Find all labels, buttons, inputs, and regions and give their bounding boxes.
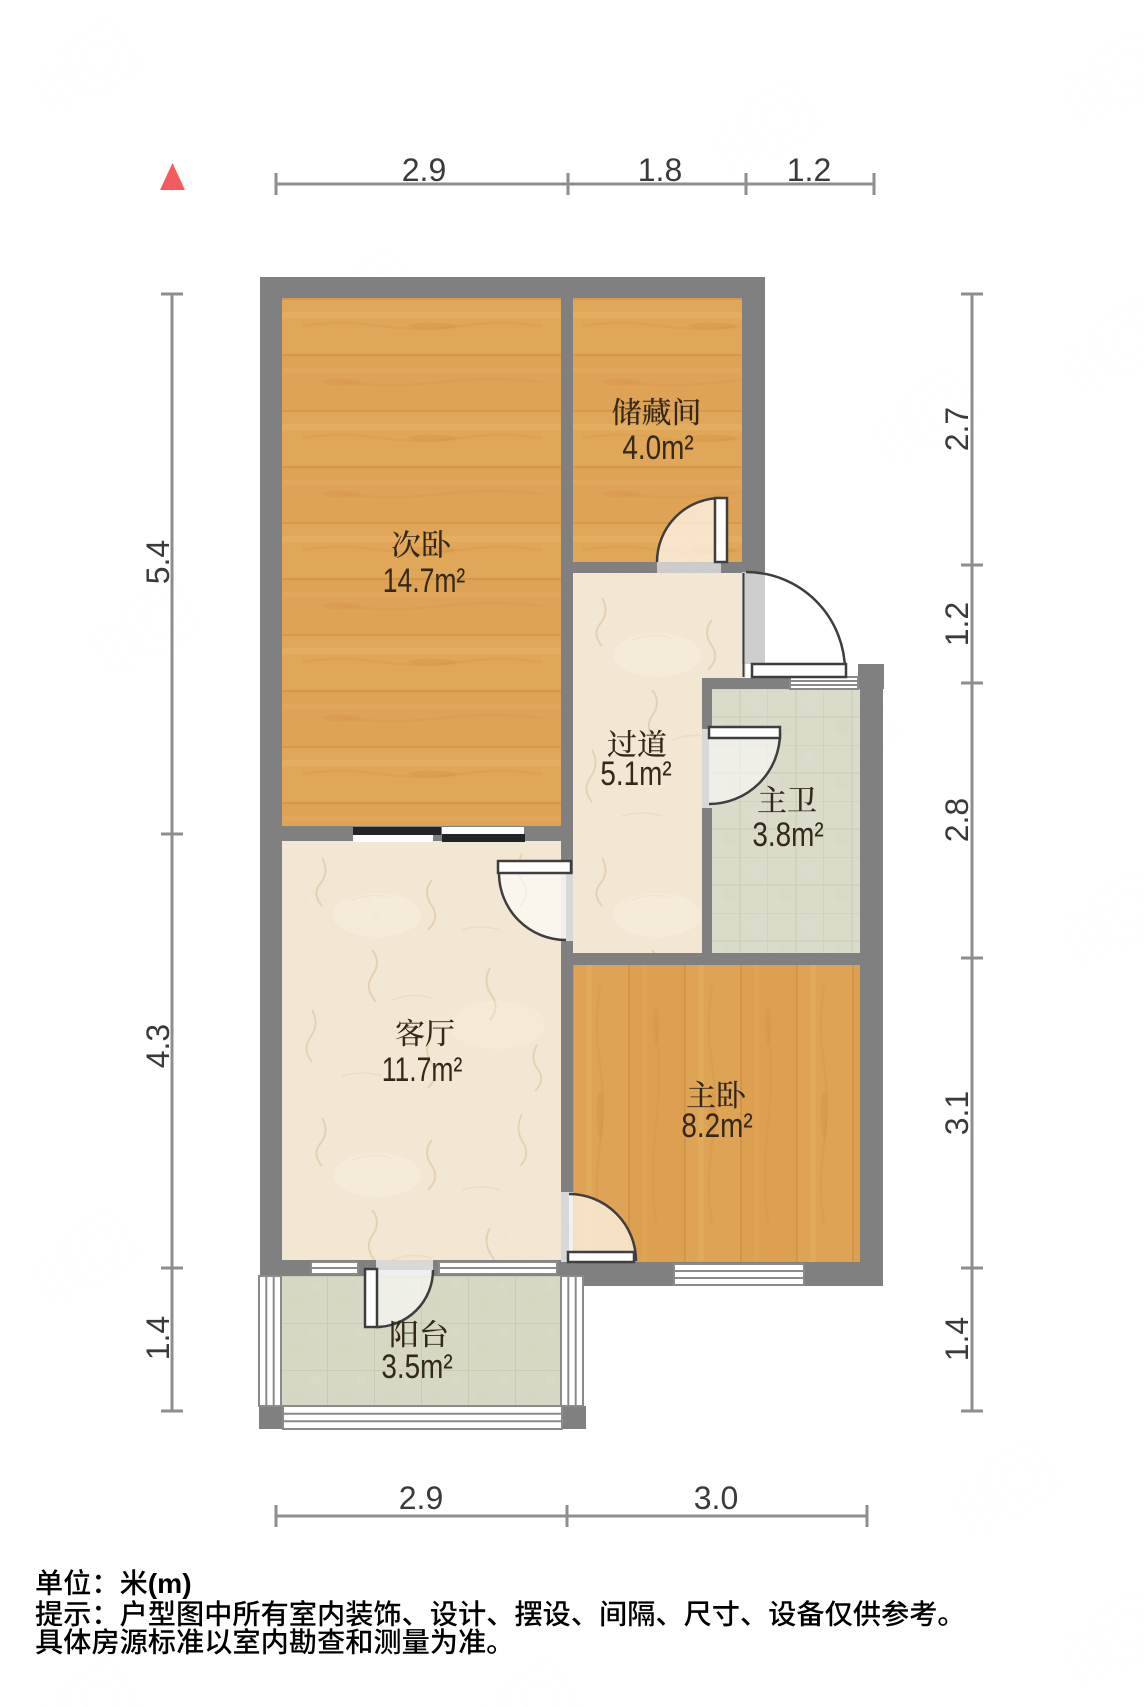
svg-text:3.8m²: 3.8m² xyxy=(752,815,823,853)
svg-text:1.4: 1.4 xyxy=(140,1316,176,1360)
svg-text:8.2m²: 8.2m² xyxy=(681,1106,752,1144)
svg-text:1.2: 1.2 xyxy=(939,602,975,646)
svg-text:1.4: 1.4 xyxy=(939,1317,975,1361)
svg-text:5.1m²: 5.1m² xyxy=(600,754,671,792)
svg-text:4.0m²: 4.0m² xyxy=(622,428,693,466)
svg-text:5.4: 5.4 xyxy=(140,540,176,584)
svg-text:3.1: 3.1 xyxy=(939,1091,975,1135)
svg-text:2.9: 2.9 xyxy=(402,152,446,188)
svg-text:1.2: 1.2 xyxy=(787,152,831,188)
svg-text:2.9: 2.9 xyxy=(399,1480,443,1516)
svg-text:3.0: 3.0 xyxy=(694,1480,738,1516)
svg-text:2.8: 2.8 xyxy=(939,798,975,842)
svg-text:4.3: 4.3 xyxy=(140,1024,176,1068)
svg-text:14.7m²: 14.7m² xyxy=(383,562,466,600)
svg-text:3.5m²: 3.5m² xyxy=(381,1347,452,1385)
svg-text:(m): (m) xyxy=(148,1567,192,1599)
svg-text:11.7m²: 11.7m² xyxy=(382,1051,463,1089)
svg-text:1.8: 1.8 xyxy=(638,152,682,188)
